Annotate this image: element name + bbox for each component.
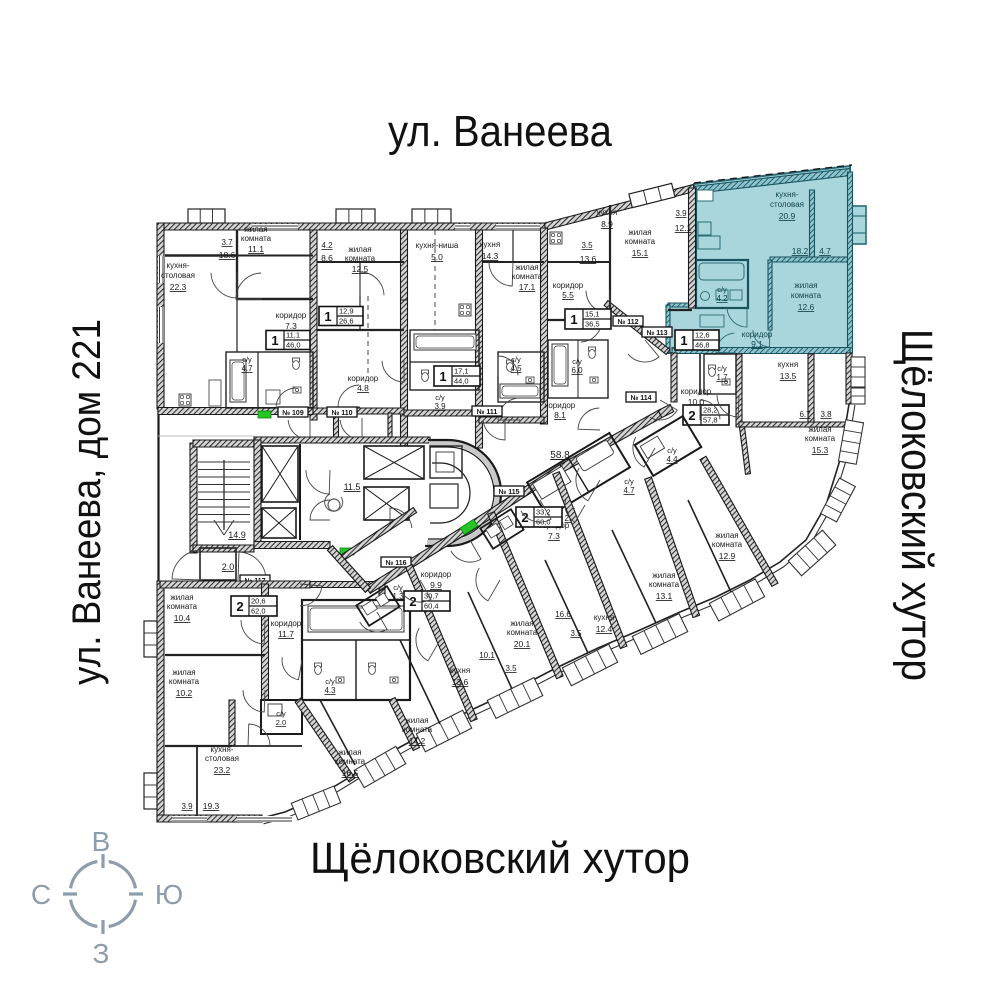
svg-text:12,9: 12,9 (339, 307, 354, 316)
svg-text:4.4: 4.4 (666, 455, 678, 464)
svg-text:4.7: 4.7 (623, 486, 635, 495)
svg-text:№ 114: № 114 (630, 394, 651, 402)
svg-text:1: 1 (271, 333, 278, 348)
svg-text:11.1: 11.1 (248, 244, 264, 254)
svg-text:9.9: 9.9 (430, 580, 442, 590)
svg-text:1: 1 (324, 309, 331, 324)
svg-text:кухня-ниша: кухня-ниша (416, 241, 459, 250)
svg-text:с/у: с/у (624, 477, 634, 486)
svg-text:60,4: 60,4 (424, 602, 439, 611)
svg-text:10.2: 10.2 (176, 688, 193, 698)
svg-text:кухня: кухня (597, 208, 617, 217)
svg-text:20.9: 20.9 (779, 211, 796, 221)
svg-text:3.9: 3.9 (675, 209, 687, 218)
svg-text:жилая: жилая (808, 425, 831, 434)
svg-text:3.9: 3.9 (181, 802, 193, 811)
svg-text:с/у: с/у (276, 709, 286, 718)
svg-text:с/у: с/у (325, 677, 335, 686)
svg-text:комната: комната (335, 757, 366, 766)
svg-text:№ 110: № 110 (331, 409, 352, 417)
svg-text:15.3: 15.3 (812, 445, 829, 455)
svg-text:3.9: 3.9 (434, 402, 446, 411)
svg-text:10.4: 10.4 (174, 613, 191, 623)
svg-text:13.5: 13.5 (780, 371, 797, 381)
svg-text:11,1: 11,1 (286, 331, 300, 340)
svg-text:жилая: жилая (652, 571, 675, 580)
svg-text:8.9: 8.9 (601, 219, 613, 229)
svg-text:3.5: 3.5 (570, 629, 582, 638)
svg-text:Щёлоковский хутор: Щёлоковский хутор (892, 329, 941, 681)
svg-text:комната: комната (241, 234, 272, 243)
svg-text:22.3: 22.3 (170, 282, 187, 292)
svg-text:11.5: 11.5 (344, 482, 361, 492)
svg-text:10.1: 10.1 (479, 651, 495, 660)
svg-text:№ 115: № 115 (498, 488, 519, 496)
svg-text:3.5: 3.5 (505, 664, 517, 673)
svg-text:8.1: 8.1 (554, 410, 566, 420)
svg-text:2: 2 (688, 408, 695, 423)
svg-text:1.7: 1.7 (716, 373, 728, 382)
svg-text:комната: комната (649, 580, 680, 589)
svg-text:18.2: 18.2 (792, 246, 809, 256)
svg-text:комната: комната (805, 434, 836, 443)
svg-text:кухня-: кухня- (210, 745, 233, 754)
svg-text:№ 112: № 112 (617, 318, 638, 326)
svg-text:коридор: коридор (348, 374, 379, 383)
svg-text:4.2: 4.2 (321, 241, 333, 250)
svg-text:36,5: 36,5 (585, 320, 600, 329)
svg-text:3.7: 3.7 (221, 238, 233, 247)
svg-text:13.1: 13.1 (656, 591, 673, 601)
svg-text:столовая: столовая (205, 754, 239, 763)
svg-text:с/у: с/у (435, 393, 445, 402)
svg-text:4.7: 4.7 (241, 364, 253, 373)
svg-text:коридор: коридор (545, 401, 576, 410)
svg-text:комната: комната (167, 602, 198, 611)
svg-text:комната: комната (512, 272, 543, 281)
svg-text:2.0: 2.0 (276, 718, 286, 727)
svg-text:5.0: 5.0 (431, 252, 443, 262)
svg-text:с/у: с/у (667, 446, 677, 455)
svg-text:комната: комната (625, 237, 656, 246)
svg-text:23.2: 23.2 (214, 765, 231, 775)
svg-text:жилая: жилая (348, 245, 371, 254)
svg-text:12.5: 12.5 (352, 264, 369, 274)
svg-text:кухня-: кухня- (166, 261, 189, 270)
svg-text:6.0: 6.0 (571, 366, 583, 375)
svg-text:16.5: 16.5 (342, 768, 359, 778)
svg-text:жилая: жилая (794, 281, 817, 290)
svg-text:жилая: жилая (628, 228, 651, 237)
svg-text:комната: комната (712, 540, 743, 549)
svg-text:57,8: 57,8 (703, 416, 718, 425)
svg-text:6.7: 6.7 (799, 410, 811, 419)
svg-text:3.5: 3.5 (581, 241, 593, 250)
svg-text:комната: комната (507, 628, 538, 637)
svg-text:15,1: 15,1 (585, 310, 600, 319)
svg-text:12.6: 12.6 (798, 302, 815, 312)
svg-text:№ 116: № 116 (385, 559, 406, 567)
svg-text:46,8: 46,8 (695, 341, 710, 350)
svg-text:17.1: 17.1 (519, 282, 536, 292)
svg-text:19.3: 19.3 (203, 801, 220, 811)
svg-text:жилая: жилая (244, 225, 267, 234)
svg-text:1: 1 (439, 369, 446, 384)
svg-text:12.1: 12.1 (675, 223, 692, 233)
svg-text:7.3: 7.3 (285, 321, 297, 331)
svg-text:С: С (31, 879, 51, 910)
svg-text:жилая: жилая (715, 531, 738, 540)
svg-text:жилая: жилая (510, 619, 533, 628)
svg-text:ул. Ванеева, дом 221: ул. Ванеева, дом 221 (65, 319, 109, 685)
svg-text:комната: комната (169, 677, 200, 686)
svg-text:4.8: 4.8 (357, 383, 369, 393)
svg-text:20.1: 20.1 (514, 639, 531, 649)
svg-text:62,0: 62,0 (251, 607, 266, 616)
svg-text:4.7: 4.7 (819, 246, 831, 256)
svg-text:№ 111: № 111 (477, 408, 498, 416)
svg-text:с/у: с/у (717, 285, 727, 294)
svg-text:20,6: 20,6 (251, 597, 266, 606)
svg-text:коридор: коридор (421, 570, 452, 579)
svg-text:14.3: 14.3 (482, 251, 499, 261)
svg-text:коридор: коридор (742, 330, 773, 339)
svg-text:2.0: 2.0 (222, 562, 235, 572)
svg-text:с/у: с/у (511, 355, 521, 364)
svg-text:13.6: 13.6 (452, 677, 469, 687)
svg-text:коридор: коридор (553, 281, 584, 290)
svg-text:Щёлоковский хутор: Щёлоковский хутор (310, 834, 690, 883)
svg-text:жилая: жилая (170, 593, 193, 602)
svg-text:8.6: 8.6 (321, 253, 333, 263)
svg-text:столовая: столовая (161, 271, 195, 280)
svg-text:1: 1 (680, 333, 687, 348)
svg-text:кухня: кухня (450, 666, 470, 675)
svg-text:16.6: 16.6 (555, 610, 571, 619)
svg-text:12.4: 12.4 (596, 624, 613, 634)
svg-text:44,0: 44,0 (454, 377, 469, 386)
svg-text:4.5: 4.5 (510, 364, 522, 373)
svg-text:12,6: 12,6 (695, 331, 710, 340)
svg-text:комната: комната (791, 291, 822, 300)
svg-text:жилая: жилая (515, 263, 538, 272)
svg-text:17,1: 17,1 (454, 367, 469, 376)
svg-text:№ 113: № 113 (646, 329, 667, 337)
svg-text:коридор: коридор (681, 387, 712, 396)
svg-text:З: З (93, 938, 110, 969)
svg-text:Ю: Ю (155, 879, 183, 910)
svg-text:с/у: с/у (393, 583, 403, 592)
svg-text:2: 2 (236, 599, 243, 614)
svg-text:2: 2 (521, 510, 528, 525)
svg-text:с/у: с/у (242, 355, 252, 364)
svg-text:комната: комната (402, 725, 433, 734)
svg-text:В: В (92, 826, 111, 857)
svg-text:46,0: 46,0 (286, 341, 301, 350)
svg-text:жилая: жилая (172, 668, 195, 677)
svg-text:комната: комната (345, 254, 376, 263)
svg-text:26,6: 26,6 (339, 317, 354, 326)
svg-text:3.8: 3.8 (820, 410, 832, 419)
svg-text:14.2: 14.2 (409, 736, 426, 746)
svg-text:кухня: кухня (480, 240, 500, 249)
svg-text:кухня: кухня (778, 360, 798, 369)
svg-text:№ 109: № 109 (282, 409, 304, 417)
svg-text:кухня-: кухня- (775, 190, 798, 199)
svg-text:с/у: с/у (717, 364, 727, 373)
svg-text:коридор: коридор (276, 311, 307, 320)
svg-text:жилая: жилая (405, 716, 428, 725)
svg-text:12.9: 12.9 (719, 551, 736, 561)
svg-text:ул. Ванеева: ул. Ванеева (388, 107, 612, 156)
svg-text:7.3: 7.3 (548, 531, 560, 541)
svg-text:коридор: коридор (271, 619, 302, 628)
svg-text:15.1: 15.1 (632, 248, 649, 258)
svg-text:11.7: 11.7 (278, 629, 294, 639)
svg-text:столовая: столовая (770, 200, 804, 209)
svg-text:кухня: кухня (594, 613, 614, 622)
svg-text:жилая: жилая (338, 748, 361, 757)
svg-text:5.5: 5.5 (562, 290, 574, 300)
svg-text:18.6: 18.6 (219, 250, 236, 260)
svg-text:4.3: 4.3 (324, 686, 336, 695)
svg-text:1: 1 (570, 312, 577, 327)
svg-text:с/у: с/у (572, 357, 582, 366)
svg-text:14.9: 14.9 (228, 530, 246, 540)
svg-text:4.2: 4.2 (716, 294, 728, 303)
